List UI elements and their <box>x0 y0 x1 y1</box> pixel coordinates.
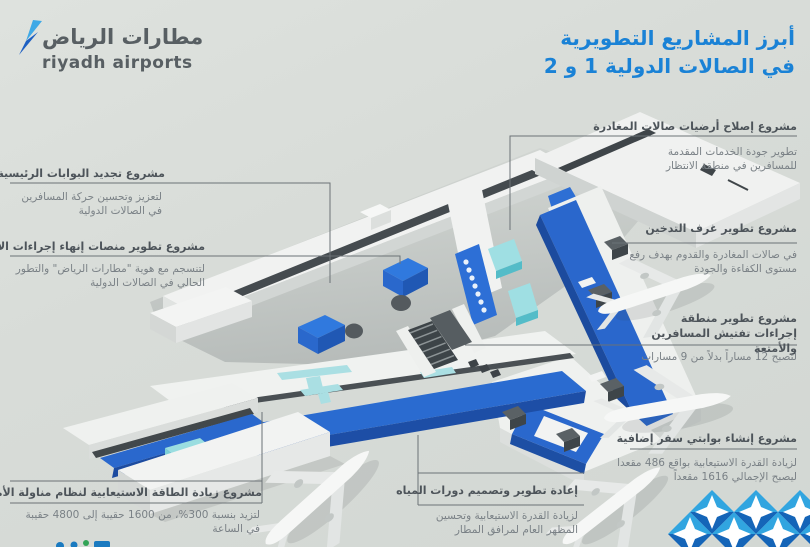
annotation-restrooms-body: لزيادة القدرة الاستيعابية وتحسين المظهر … <box>420 509 578 537</box>
annotation-smoking-rooms-title: مشروع تطوير غرف التدخين <box>547 221 797 236</box>
annotation-new-gates-title: مشروع إنشاء بوابتي سفر إضافية <box>547 431 797 446</box>
roof-plate <box>150 148 665 366</box>
brand-name-arabic: مطارات الرياض <box>42 25 212 49</box>
riyadh-airports-bolt-icon <box>19 20 42 55</box>
infographic-page: مطارات الرياض riyadh airports أبرز المشا… <box>0 0 810 547</box>
annotation-restrooms-title: إعادة تطوير وتصميم دورات المياه <box>420 483 578 498</box>
annotation-security-screening-body: لتصبح 12 مساراً بدلاً من 9 مسارات <box>597 350 797 364</box>
blue-kiosk-2 <box>298 315 345 354</box>
annotation-floors-title: مشروع إصلاح أرضيات صالات المغادرة <box>547 119 797 134</box>
annotation-baggage-capacity-body: لتزيد بنسبة 300%، من 1600 حقيبة إلى 4800… <box>10 508 260 536</box>
blue-kiosk-1 <box>383 258 428 297</box>
annotation-main-gates-title: مشروع تجديد البوابات الرئيسية <box>0 166 165 181</box>
annotation-new-gates-body: لزيادة القدرة الاستيعابية بواقع 486 مقعد… <box>617 456 797 484</box>
annotation-baggage-counters-body: لتنسجم مع هوية "مطارات الرياض" والتطور ا… <box>10 262 205 290</box>
annotation-smoking-rooms-body: في صالات المغادرة والقدوم بهدف رفع مستوى… <box>629 248 797 276</box>
baggage-conveyor-center <box>235 371 586 459</box>
baggage-conveyor-left <box>100 414 266 478</box>
brand-star-pattern <box>668 490 810 547</box>
infographic-title-line1: أبرز المشاريع التطويرية <box>465 24 795 52</box>
escalator <box>396 304 486 377</box>
gate-stubs <box>502 236 628 452</box>
annotation-floors-body: تطوير جودة الخدمات المقدمة للمسافرين في … <box>635 145 797 173</box>
infographic-title: أبرز المشاريع التطويرية في الصالات الدول… <box>465 24 795 80</box>
partial-footer-mark <box>56 540 110 547</box>
annotation-baggage-capacity-title: مشروع زيادة الطاقة الاستيعابية لنظام منا… <box>8 485 262 500</box>
annotation-baggage-counters-title: مشروع تطوير منصات إنهاء إجراءات الأمتعة <box>0 239 205 254</box>
annotation-main-gates-body: لتعزيز وتحسين حركة المسافرين في الصالات … <box>10 190 162 218</box>
airplane-2 <box>589 352 739 464</box>
infographic-title-line2: في الصالات الدولية 1 و 2 <box>465 52 795 80</box>
brand-name-english: riyadh airports <box>42 53 212 73</box>
